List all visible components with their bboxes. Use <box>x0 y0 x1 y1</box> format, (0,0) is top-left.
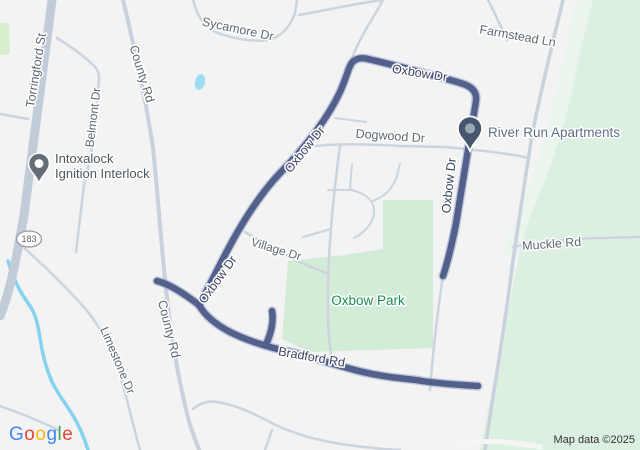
oxbow-park-label[interactable]: Oxbow Park <box>331 293 405 308</box>
intoxalock-line1-label[interactable]: Intoxalock <box>55 151 114 166</box>
google-logo-letter-5: e <box>62 424 73 445</box>
river-run-apartments-label[interactable]: River Run Apartments <box>488 125 620 140</box>
park-upper-arm <box>383 200 433 252</box>
google-logo[interactable]: Google <box>9 425 73 444</box>
route-183-shield-number: 183 <box>21 234 36 244</box>
grass-patch <box>0 23 10 55</box>
google-logo-letter-3: g <box>46 424 57 445</box>
river-run-apartments-pin-inner-dot <box>465 123 475 133</box>
map-data-attribution: Map data ©2025 <box>554 434 636 446</box>
intoxalock-pin-inner-dot <box>35 159 44 168</box>
google-logo-letter-1: o <box>24 424 35 445</box>
google-logo-letter-0: G <box>9 424 24 445</box>
map-canvas[interactable]: 183Torringford StCounty RdBelmont DrSyca… <box>0 0 640 450</box>
route-183-shield: 183 <box>17 231 42 247</box>
intoxalock-line2-label[interactable]: Ignition Interlock <box>55 166 150 181</box>
google-logo-letter-2: o <box>35 424 46 445</box>
map-svg[interactable]: 183Torringford StCounty RdBelmont DrSyca… <box>0 0 640 450</box>
